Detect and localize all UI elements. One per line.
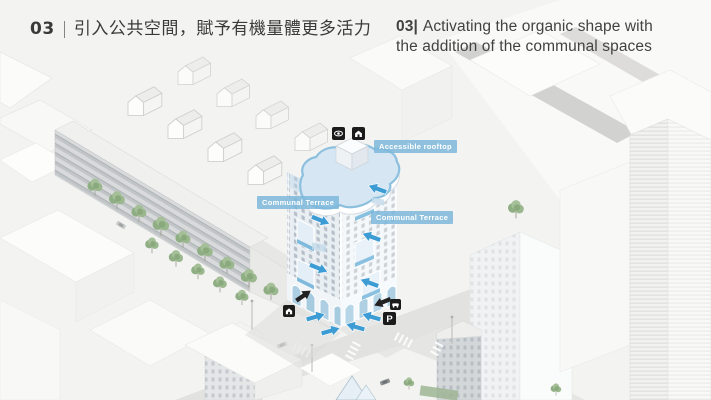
title-chinese: 03|引入公共空間，賦予有機量體更多活力 [30, 14, 371, 39]
label-accessible-rooftop: Accessible rooftop [374, 140, 457, 153]
label-communal-terrace-right: Communal Terrace [371, 211, 453, 224]
label-communal-terrace-left: Communal Terrace [257, 196, 339, 209]
eye-icon [332, 127, 345, 140]
house-icon [283, 305, 295, 317]
title-chinese-number: 03 [30, 19, 55, 39]
title-english-number: 03| [396, 18, 418, 35]
car-icon [390, 299, 401, 310]
parking-glyph: P [386, 314, 393, 325]
parking-icon: P [383, 312, 396, 325]
title-english: 03|Activating the organic shape with the… [396, 17, 708, 58]
title-english-line2: the addition of the communal spaces [396, 38, 652, 55]
house-icon [352, 127, 365, 140]
title-chinese-text: 引入公共空間，賦予有機量體更多活力 [74, 19, 372, 39]
title-english-line1: Activating the organic shape with [423, 18, 653, 35]
axonometric-scene: P [0, 0, 711, 400]
title-divider: | [62, 19, 68, 39]
slide: P 03|引入公共空間，賦予有機量體更多活力 03|Activating the… [0, 0, 711, 400]
